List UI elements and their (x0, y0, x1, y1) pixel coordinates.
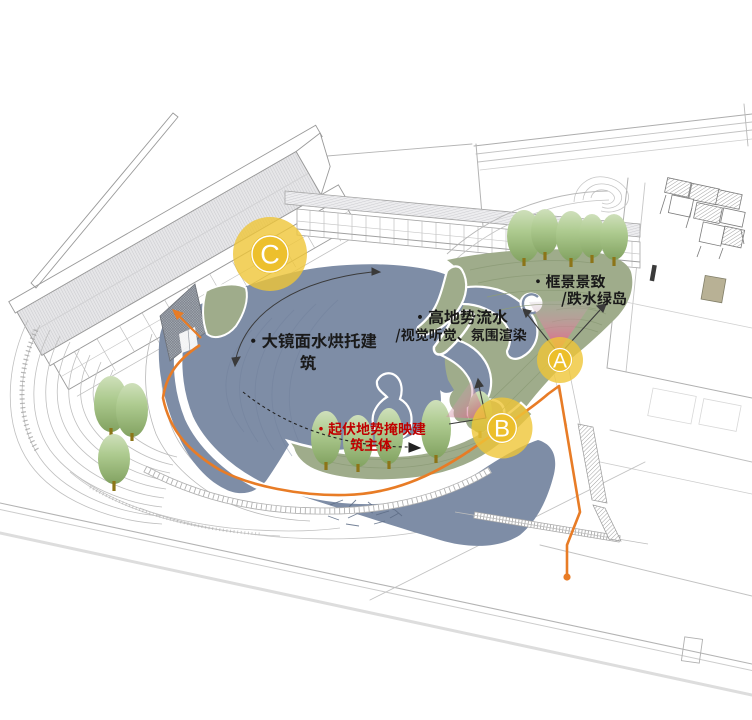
svg-text:C: C (260, 240, 280, 270)
svg-text:A: A (553, 350, 567, 373)
svg-text:B: B (494, 416, 510, 443)
